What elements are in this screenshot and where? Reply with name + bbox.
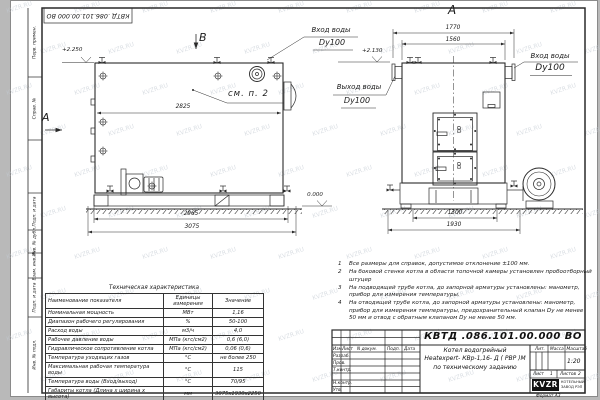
tech-header-units: Единицы измерения <box>164 294 213 309</box>
row-unit: мм <box>164 387 213 400</box>
sheet-value: 1 <box>550 372 553 377</box>
table-row: Температура уходящих газов°Сне более 250 <box>46 354 264 363</box>
dim-1930: 1930 <box>434 223 474 229</box>
company-line-2: ЗАВОД РЭП <box>561 385 585 390</box>
note-text: На отводящей трубе котла, до запорной ар… <box>349 300 592 322</box>
note-number: 4 <box>338 300 349 322</box>
col-doc: N докум. <box>357 347 377 352</box>
col-podp: Подп. <box>387 347 400 352</box>
row-name: Температура уходящих газов <box>46 354 164 363</box>
row-name: Диапазон рабочего регулирования <box>46 318 164 327</box>
row-value: 70/95 <box>213 378 264 387</box>
view-arrow-a-label: А <box>42 112 50 123</box>
row-nkontr: Н.контр. <box>333 381 352 386</box>
stamp-inv-podl: Инв. № подл. <box>33 320 38 390</box>
callout-inlet-right-line2: Dy100 <box>520 64 580 73</box>
callout-inlet-right-line1: Вход воды <box>520 53 580 60</box>
callout-inlet-top-line1: Вход воды <box>301 27 361 34</box>
table-row: Расход водым3/ч4,0 <box>46 327 264 336</box>
note-text: На подводящей трубе котла, до запорной а… <box>349 285 592 300</box>
row-name: Габариты котла (Длина х ширина х высота) <box>46 387 164 400</box>
row-value: 4,0 <box>213 327 264 336</box>
row-name: Расход воды <box>46 327 164 336</box>
row-value: 50-100 <box>213 318 264 327</box>
row-value: 3075х1930х2250 <box>213 387 264 400</box>
tech-table: Наименование показателя Единицы измерени… <box>45 293 264 400</box>
product-line-3: по техническому заданию <box>421 364 529 372</box>
mass-label: Масса <box>550 347 564 352</box>
title-block-designation: КВТД .086.101.00.000 ВО <box>422 331 584 344</box>
note-number: 1 <box>338 261 349 268</box>
callout-inlet-top-line2: Dy100 <box>302 39 362 47</box>
row-unit: м3/ч <box>164 327 213 336</box>
lit-label: Лит. <box>535 347 545 352</box>
callout-outlet-line2: Dy100 <box>327 97 387 105</box>
see-note-label: см. п. 2 <box>228 90 269 99</box>
elevation-2250: +2.250 <box>62 48 82 54</box>
table-row: Гидравлическое сопротивление котлаМПа (к… <box>46 345 264 354</box>
row-name: Гидравлическое сопротивление котла <box>46 345 164 354</box>
dim-1770: 1770 <box>433 26 473 32</box>
elevation-2130: +2.130 <box>362 49 382 55</box>
row-name: Максимальная рабочая температура воды <box>46 363 164 378</box>
table-row: Габариты котла (Длина х ширина х высота)… <box>46 387 264 400</box>
row-name: Номинальная мощность <box>46 309 164 318</box>
note-text: На боковой стенке котла в области топочн… <box>349 269 592 284</box>
table-row: Максимальная рабочая температура воды°С1… <box>46 363 264 378</box>
tech-header-name: Наименование показателя <box>46 294 164 309</box>
callout-outlet-line1: Выход воды <box>329 84 389 91</box>
product-line-2: Heatexpert- КВр-1,16- Д ( РВР )М <box>421 355 529 363</box>
row-tkontr: Т.контр. <box>333 368 352 373</box>
dim-3075: 3075 <box>172 225 212 231</box>
row-value: 115 <box>213 363 264 378</box>
col-data: Дата <box>404 347 415 352</box>
note-item: 3На подводящей трубе котла, до запорной … <box>338 285 592 300</box>
product-line-1: Котел водогрейный <box>421 347 529 355</box>
row-unit: °С <box>164 363 213 378</box>
row-name: Температура воды (Вход/выход) <box>46 378 164 387</box>
company-name: КОТЕЛЬНЫЙ ЗАВОД РЭП <box>561 380 585 389</box>
designation-flipped: КВТД .086.101.00.000 ВО <box>44 8 132 23</box>
col-list: Лист <box>342 347 353 352</box>
scale-label: Масштаб <box>567 347 587 352</box>
scale-value: 1:20 <box>567 358 580 365</box>
sheets-value: 2 <box>578 372 581 377</box>
stamp-sprav-no: Справ. № <box>33 74 38 144</box>
dim-2825: 2825 <box>163 105 203 111</box>
title-block-product-name: Котел водогрейный Heatexpert- КВр-1,16- … <box>421 347 529 372</box>
dim-1300: 1300 <box>435 211 475 217</box>
note-item: 4На отводящей трубе котла, до запорной а… <box>338 300 592 322</box>
front-view-title: А <box>448 4 456 16</box>
row-unit: °С <box>164 378 213 387</box>
sheet-label: Лист <box>533 372 544 377</box>
table-row: Диапазон рабочего регулирования%50-100 <box>46 318 264 327</box>
note-text: Все размеры для справок, допустимое откл… <box>349 261 592 268</box>
stamp-perv-primen: Перв. примен. <box>33 8 38 78</box>
dim-2965: 2965 <box>171 212 211 218</box>
row-value: не более 250 <box>213 354 264 363</box>
tech-characteristics: Техническая характеристика Наименование … <box>45 285 263 400</box>
tech-header-row: Наименование показателя Единицы измерени… <box>46 294 264 309</box>
note-number: 3 <box>338 285 349 300</box>
row-utv: Утв. <box>333 388 342 393</box>
note-item: 2На боковой стенке котла в области топоч… <box>338 269 592 284</box>
row-unit: МВт <box>164 309 213 318</box>
view-arrow-b-label: В <box>199 32 207 43</box>
format-label: Формат А3 <box>536 394 560 399</box>
dim-1560: 1560 <box>433 38 473 44</box>
row-unit: МПа (кгс/см2) <box>164 336 213 345</box>
table-row: Рабочее давление водыМПа (кгс/см2)0,6 (6… <box>46 336 264 345</box>
row-prov: Пров. <box>333 361 346 366</box>
row-unit: % <box>164 318 213 327</box>
note-item: 1Все размеры для справок, допустимое отк… <box>338 261 592 268</box>
row-value: 0,06 (0,6) <box>213 345 264 354</box>
sheets-label: Листов <box>560 372 576 377</box>
table-row: Температура воды (Вход/выход)°С70/95 <box>46 378 264 387</box>
tech-table-title: Техническая характеристика <box>45 285 263 291</box>
kvzr-logo: KVZR <box>532 379 559 391</box>
row-value: 1,16 <box>213 309 264 318</box>
table-row: Номинальная мощностьМВт1,16 <box>46 309 264 318</box>
row-value: 0,6 (6,0) <box>213 336 264 345</box>
tech-header-value: Значение <box>213 294 264 309</box>
note-number: 2 <box>338 269 349 284</box>
drawing-viewer: KVZR.RUKVZR.RUKVZR.RUKVZR.RUKVZR.RUKVZR.… <box>0 0 600 400</box>
row-unit: МПа (кгс/см2) <box>164 345 213 354</box>
company-line-1: КОТЕЛЬНЫЙ <box>561 380 585 385</box>
row-name: Рабочее давление воды <box>46 336 164 345</box>
row-razrab: Разраб. <box>333 354 350 359</box>
elevation-0000: 0.000 <box>300 193 330 199</box>
notes-list: 1Все размеры для справок, допустимое отк… <box>338 261 592 323</box>
row-unit: °С <box>164 354 213 363</box>
